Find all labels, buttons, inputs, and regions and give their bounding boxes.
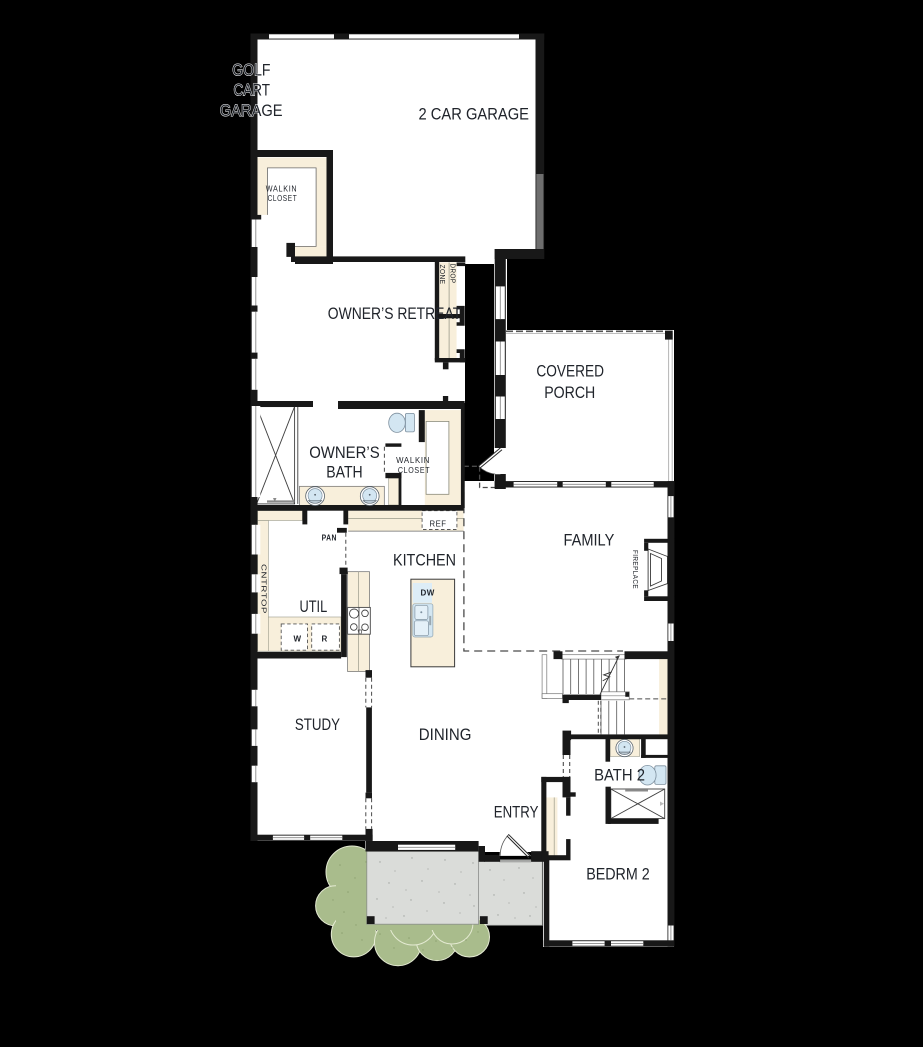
svg-text:PORCH: PORCH bbox=[544, 383, 595, 402]
svg-text:GARAGE: GARAGE bbox=[220, 101, 283, 120]
svg-text:CLOSET: CLOSET bbox=[398, 465, 430, 475]
svg-text:UTIL: UTIL bbox=[300, 597, 328, 616]
svg-text:PAN: PAN bbox=[322, 532, 337, 542]
svg-text:STUDY: STUDY bbox=[295, 715, 340, 734]
svg-text:GOLF: GOLF bbox=[232, 60, 270, 79]
svg-text:FIREPLACE: FIREPLACE bbox=[631, 550, 638, 589]
svg-text:WALKIN: WALKIN bbox=[396, 455, 430, 465]
svg-text:FAMILY: FAMILY bbox=[564, 530, 615, 549]
svg-text:ZONE: ZONE bbox=[438, 265, 447, 285]
svg-text:2 CAR GARAGE: 2 CAR GARAGE bbox=[419, 105, 530, 124]
svg-text:DINING: DINING bbox=[419, 725, 472, 744]
svg-text:ENTRY: ENTRY bbox=[494, 802, 539, 821]
svg-text:CART: CART bbox=[234, 81, 271, 100]
svg-text:BATH: BATH bbox=[326, 462, 362, 481]
svg-text:OWNER’S: OWNER’S bbox=[309, 443, 380, 462]
svg-text:BEDRM 2: BEDRM 2 bbox=[586, 864, 650, 883]
svg-text:COVERED: COVERED bbox=[536, 362, 604, 381]
svg-text:KITCHEN: KITCHEN bbox=[393, 551, 456, 570]
svg-text:REF: REF bbox=[430, 520, 447, 529]
svg-text:CNTRTOP: CNTRTOP bbox=[259, 564, 266, 614]
svg-text:WALKIN: WALKIN bbox=[266, 183, 298, 193]
svg-text:OWNER’S RETREAT: OWNER’S RETREAT bbox=[328, 304, 461, 323]
svg-text:DW: DW bbox=[421, 588, 436, 598]
svg-text:DROP: DROP bbox=[449, 264, 458, 284]
svg-text:CLOSET: CLOSET bbox=[268, 193, 298, 203]
svg-text:R: R bbox=[322, 635, 328, 644]
svg-text:BATH 2: BATH 2 bbox=[594, 766, 645, 785]
svg-text:W: W bbox=[294, 635, 302, 644]
